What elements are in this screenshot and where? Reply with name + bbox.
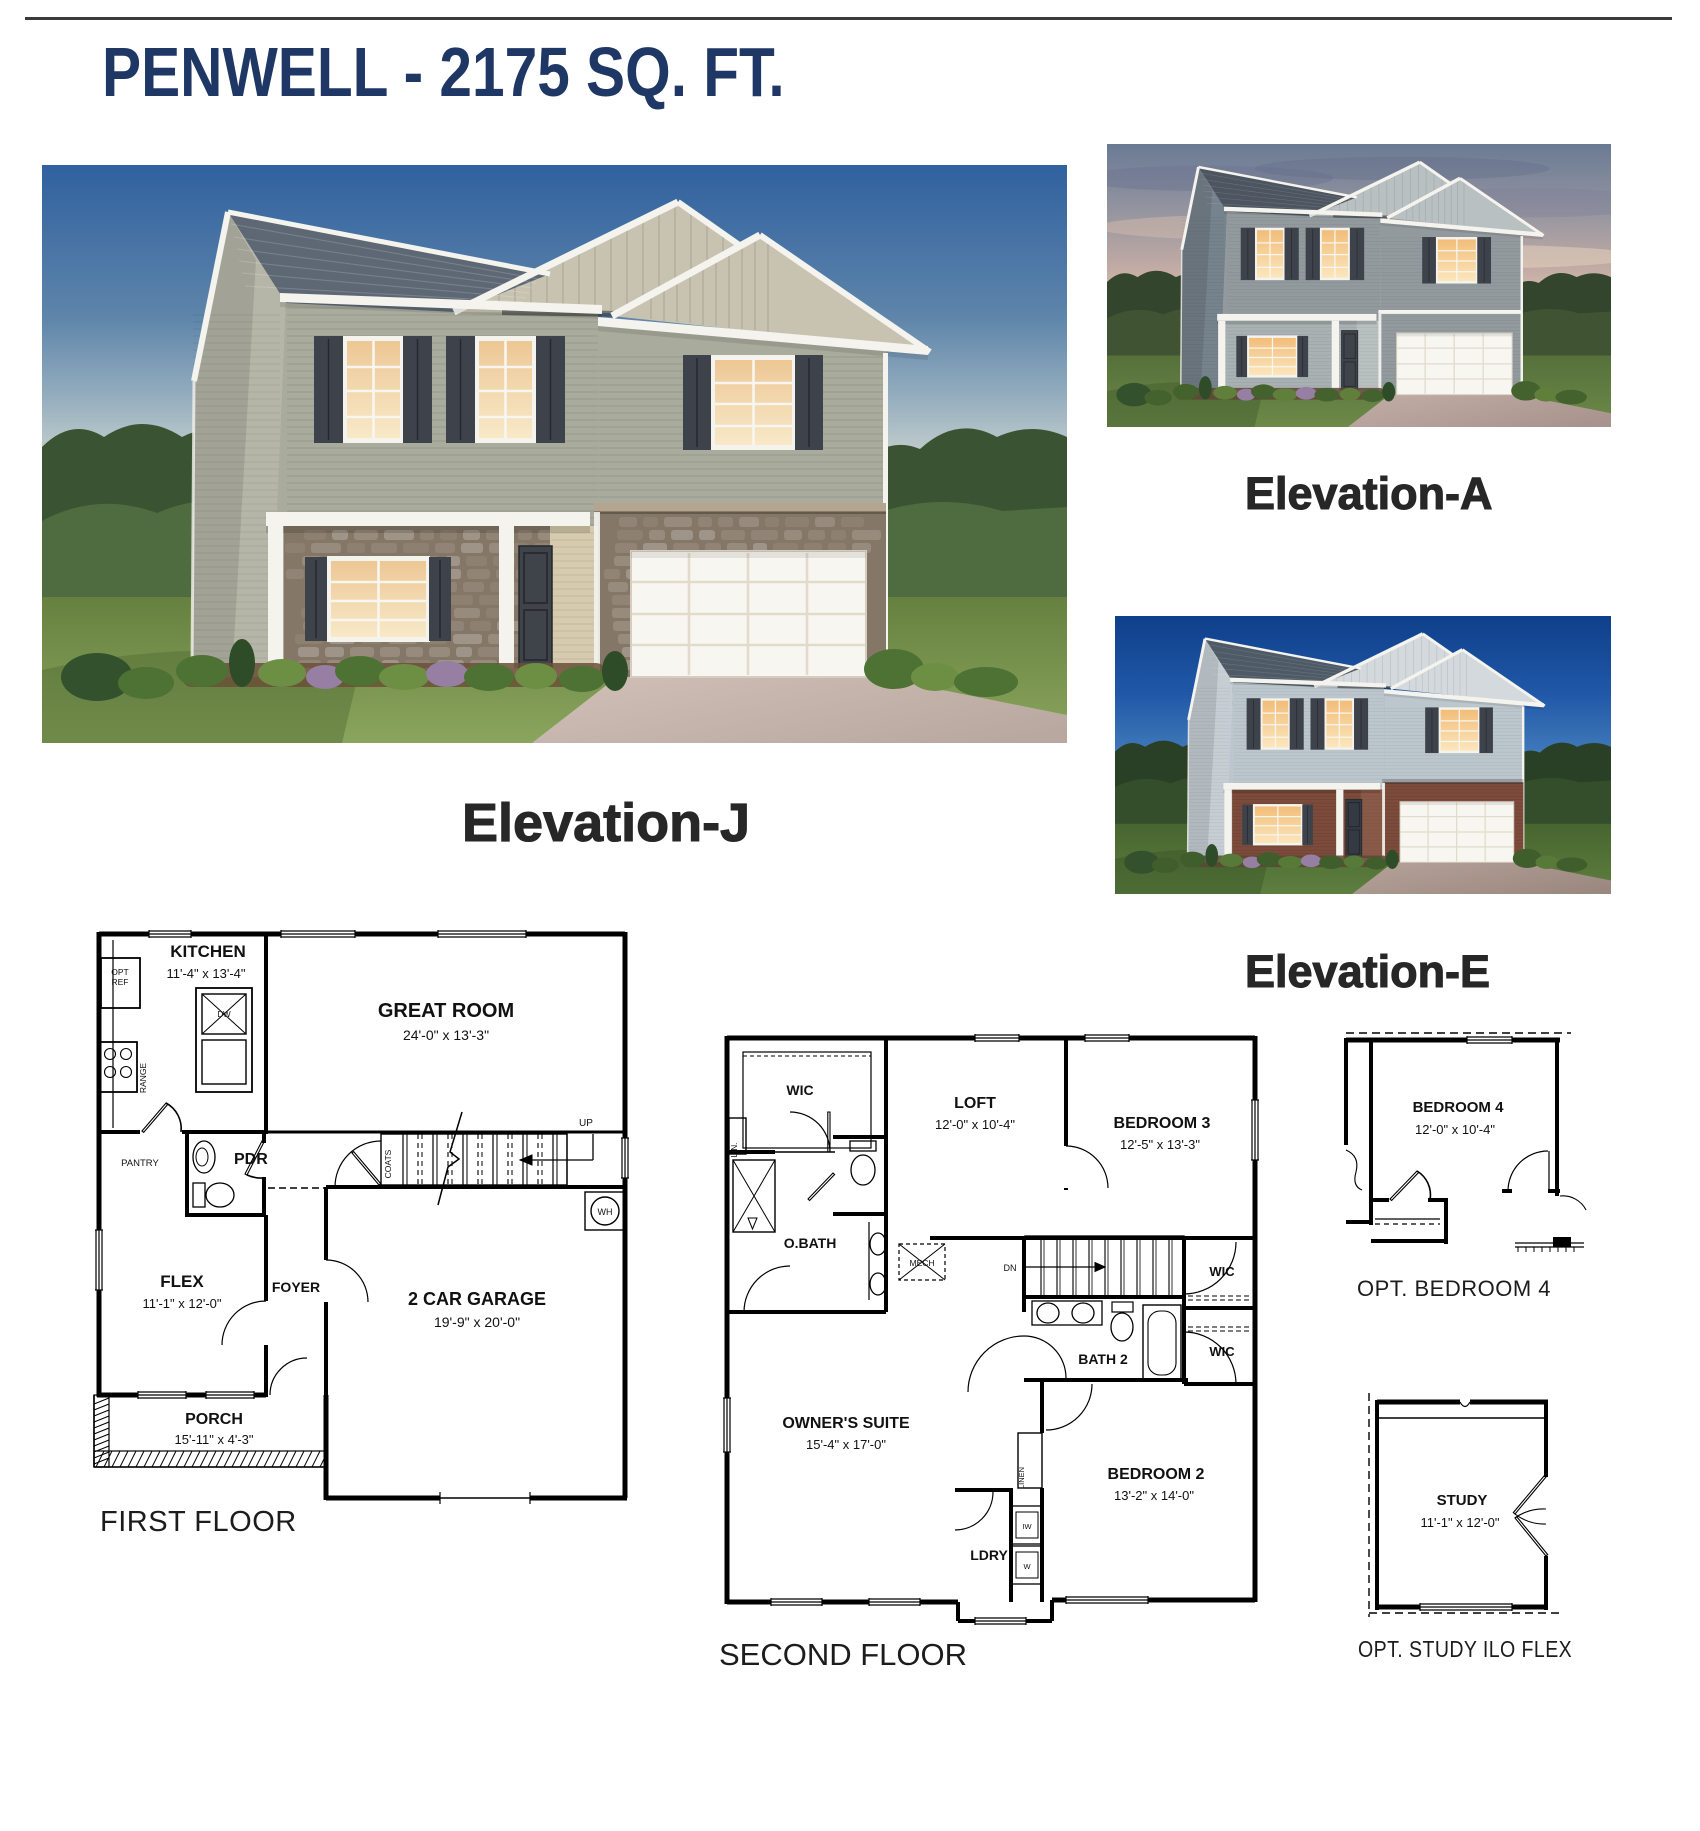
svg-text:WIC: WIC xyxy=(786,1082,813,1098)
svg-text:PANTRY: PANTRY xyxy=(121,1158,159,1169)
svg-text:WIC: WIC xyxy=(1209,1344,1235,1359)
svg-text:LINEN: LINEN xyxy=(1017,1467,1026,1489)
svg-text:FLEX: FLEX xyxy=(160,1272,204,1291)
svg-text:LOFT: LOFT xyxy=(954,1095,996,1112)
svg-text:BEDROOM 2: BEDROOM 2 xyxy=(1108,1466,1205,1483)
svg-text:FOYER: FOYER xyxy=(272,1279,320,1295)
svg-text:BEDROOM 4: BEDROOM 4 xyxy=(1413,1099,1505,1116)
svg-text:O.BATH: O.BATH xyxy=(784,1235,837,1251)
svg-text:11'-4" x 13'-4": 11'-4" x 13'-4" xyxy=(167,966,246,981)
svg-text:W: W xyxy=(1023,1562,1031,1571)
svg-text:2 CAR GARAGE: 2 CAR GARAGE xyxy=(408,1289,546,1309)
svg-text:DN: DN xyxy=(1004,1263,1017,1273)
svg-text:WH: WH xyxy=(598,1207,613,1217)
svg-text:PORCH: PORCH xyxy=(185,1411,243,1428)
svg-text:11'-1" x 12'-0": 11'-1" x 12'-0" xyxy=(1421,1515,1500,1530)
svg-text:BEDROOM 3: BEDROOM 3 xyxy=(1114,1115,1211,1132)
svg-text:BATH 2: BATH 2 xyxy=(1078,1351,1128,1367)
svg-text:GREAT ROOM: GREAT ROOM xyxy=(378,1000,514,1022)
svg-text:IW: IW xyxy=(1022,1522,1032,1531)
svg-text:UP: UP xyxy=(579,1118,593,1129)
svg-text:12'-0" x 10'-4": 12'-0" x 10'-4" xyxy=(1415,1122,1495,1137)
svg-text:19'-9" x 20'-0": 19'-9" x 20'-0" xyxy=(434,1314,520,1330)
svg-text:RANGE: RANGE xyxy=(138,1063,148,1094)
svg-text:15'-4" x 17'-0": 15'-4" x 17'-0" xyxy=(806,1437,886,1452)
svg-text:OPT: OPT xyxy=(111,967,128,977)
svg-text:12'-0" x 10'-4": 12'-0" x 10'-4" xyxy=(935,1117,1015,1132)
svg-text:11'-1" x 12'-0": 11'-1" x 12'-0" xyxy=(143,1296,222,1311)
svg-text:LIN.: LIN. xyxy=(730,1143,739,1158)
svg-text:PDR: PDR xyxy=(234,1151,268,1168)
svg-text:COATS: COATS xyxy=(383,1149,393,1178)
svg-text:12'-5" x 13'-3": 12'-5" x 13'-3" xyxy=(1120,1137,1200,1152)
svg-text:MECH: MECH xyxy=(909,1258,934,1268)
svg-text:DW: DW xyxy=(217,1010,231,1019)
svg-text:24'-0" x 13'-3": 24'-0" x 13'-3" xyxy=(403,1027,489,1043)
svg-text:OWNER'S SUITE: OWNER'S SUITE xyxy=(782,1415,910,1432)
svg-text:LDRY: LDRY xyxy=(970,1547,1008,1563)
svg-text:13'-2" x 14'-0": 13'-2" x 14'-0" xyxy=(1114,1488,1194,1503)
svg-text:KITCHEN: KITCHEN xyxy=(170,942,246,961)
svg-text:STUDY: STUDY xyxy=(1437,1492,1488,1509)
svg-text:REF: REF xyxy=(112,977,129,987)
svg-text:15'-11" x 4'-3": 15'-11" x 4'-3" xyxy=(175,1432,254,1447)
